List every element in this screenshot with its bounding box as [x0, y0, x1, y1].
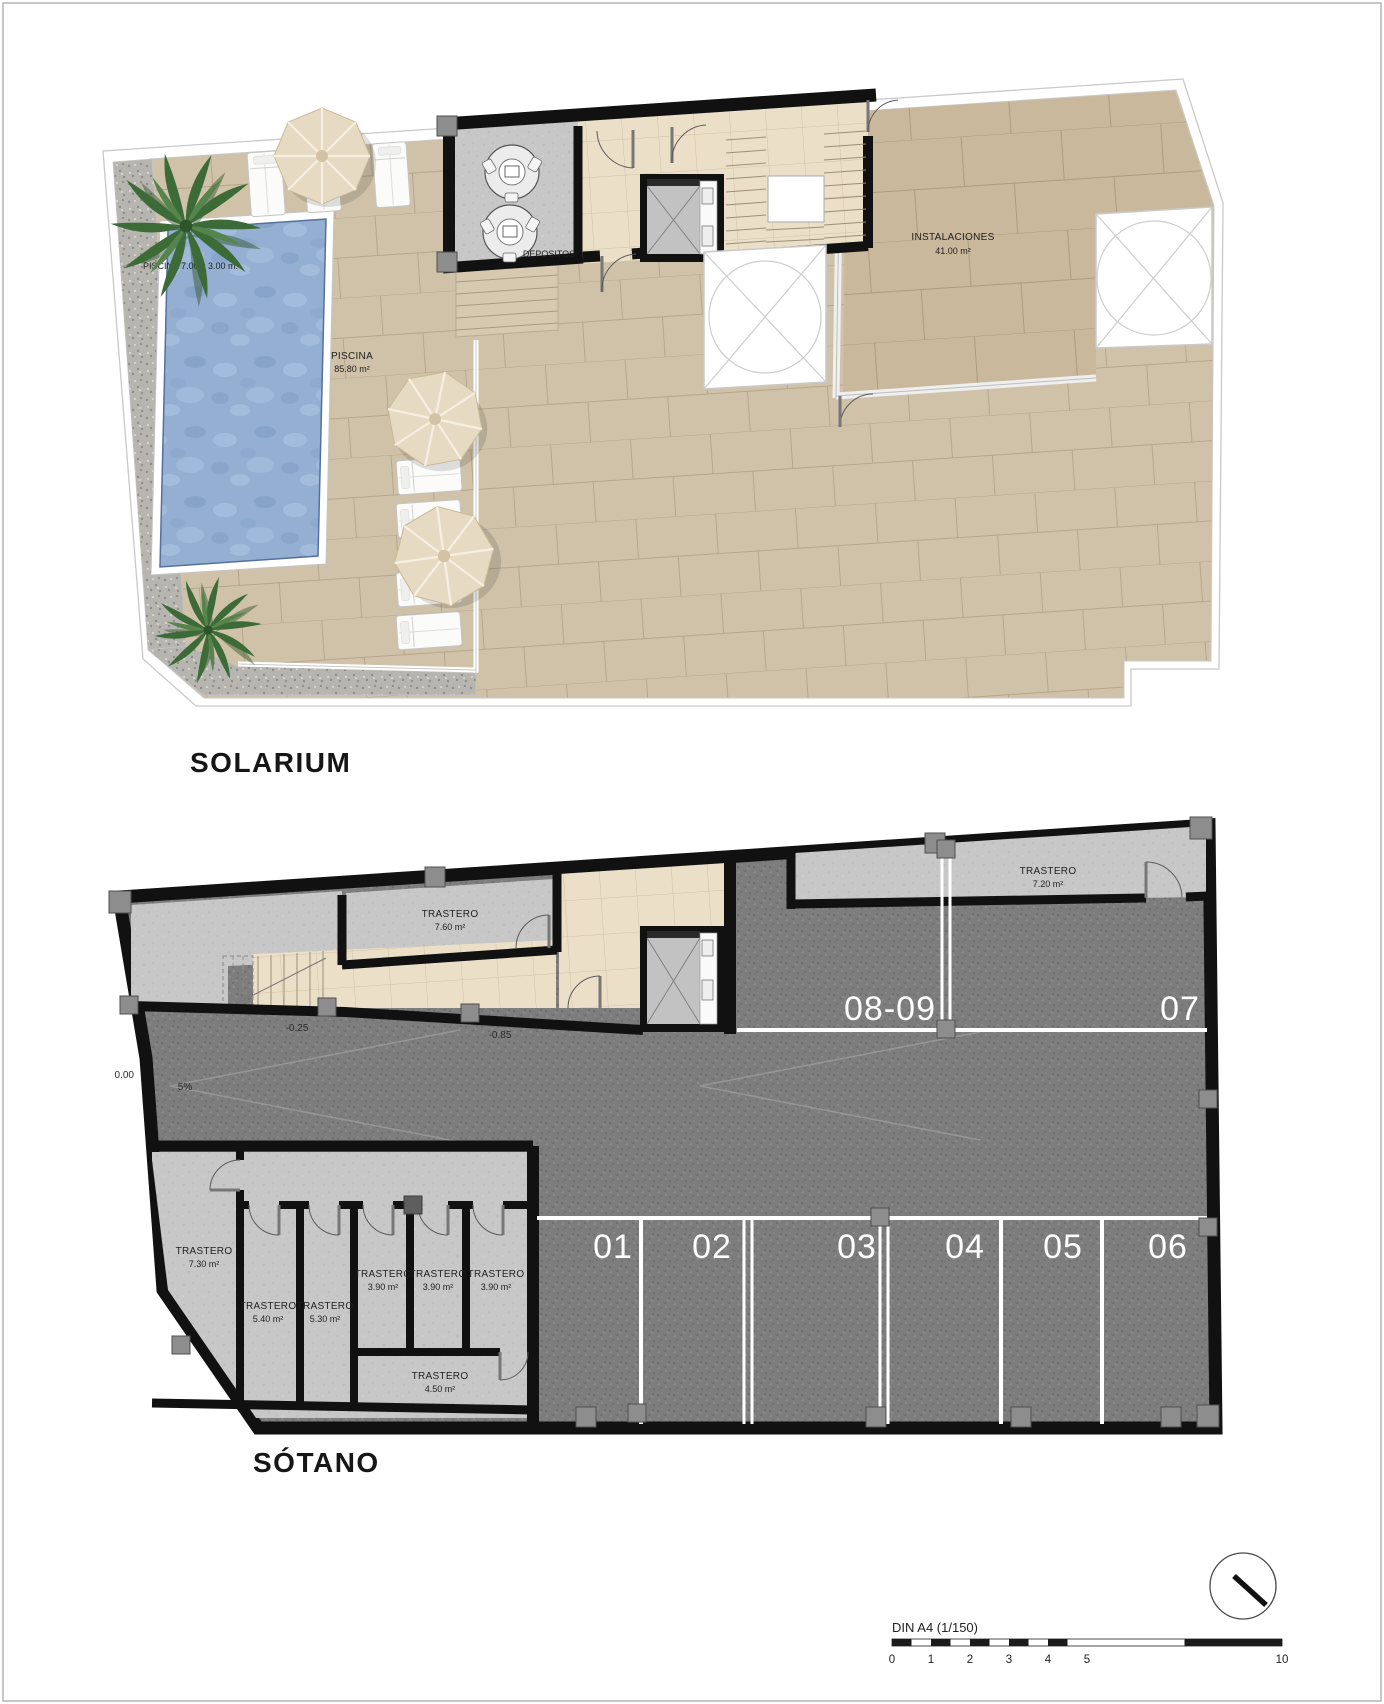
pool-name-label: PISCINA — [331, 351, 373, 362]
trastero-450-area: 4.50 m² — [425, 1384, 456, 1394]
north-arrow-icon — [1210, 1553, 1276, 1619]
solarium-title: SOLARIUM — [190, 747, 351, 778]
trastero-390a-area: 3.90 m² — [368, 1282, 399, 1292]
scale-title: DIN A4 (1/150) — [892, 1620, 978, 1635]
trastero-450-label: TRASTERO — [412, 1371, 469, 1382]
trastero-540-area: 5.40 m² — [253, 1314, 284, 1324]
parking-space-03: 03 — [837, 1228, 877, 1266]
parking-space-07: 07 — [1160, 990, 1200, 1028]
scale-tick-1: 1 — [928, 1654, 934, 1666]
elevator — [640, 174, 724, 262]
scale-ticks: 0 1 2 3 4 5 10 — [889, 1654, 1289, 1666]
skylight — [704, 245, 826, 389]
scale-tick-10: 10 — [1276, 1654, 1289, 1666]
trastero-760-label: TRASTERO — [422, 909, 479, 920]
trastero-720-label: TRASTERO — [1020, 866, 1077, 877]
parking-space-01: 01 — [593, 1228, 633, 1266]
sotano-title: SÓTANO — [253, 1447, 380, 1478]
trastero-530-area: 5.30 m² — [310, 1314, 341, 1324]
parking-space-06: 06 — [1148, 1228, 1188, 1266]
parking-space-05: 05 — [1043, 1228, 1083, 1266]
level-minus-025: -0.25 — [286, 1023, 309, 1034]
pool-area-label: 85.80 m² — [334, 364, 370, 374]
skylight — [1096, 207, 1212, 348]
trastero-530-label: TRASTERO — [297, 1301, 354, 1312]
trastero-390b-label: TRASTERO — [410, 1269, 467, 1280]
depositos-label: DEPOSITOS — [523, 249, 575, 259]
trastero-720-area: 7.20 m² — [1033, 879, 1064, 889]
ramp-slope: 5% — [178, 1082, 193, 1093]
parking-space-08-09: 08-09 — [844, 990, 936, 1028]
scale-tick-0: 0 — [889, 1654, 895, 1666]
plan-sheet: PISCINA 7.00 x 3.00 m. PISCINA 85.80 m² … — [0, 0, 1384, 1704]
scale-tick-4: 4 — [1045, 1654, 1052, 1666]
parking-space-04: 04 — [945, 1228, 985, 1266]
trastero-540-label: TRASTERO — [240, 1301, 297, 1312]
trastero-760-area: 7.60 m² — [435, 922, 466, 932]
trastero-block — [152, 1152, 528, 1418]
floorplan-drawing: PISCINA 7.00 x 3.00 m. PISCINA 85.80 m² … — [0, 0, 1384, 1704]
trastero-390a-label: TRASTERO — [355, 1269, 412, 1280]
legend: DIN A4 (1/150) 0 1 2 3 4 5 10 — [889, 1553, 1289, 1666]
column — [437, 252, 457, 272]
trastero-390b-area: 3.90 m² — [423, 1282, 454, 1292]
elevator — [640, 926, 724, 1032]
level-minus-085: -0.85 — [489, 1030, 512, 1041]
instalaciones-area-label: 41.00 m² — [935, 246, 971, 256]
level-zero: 0.00 — [115, 1070, 135, 1081]
scale-tick-5: 5 — [1084, 1654, 1090, 1666]
trastero-730-label: TRASTERO — [176, 1246, 233, 1257]
trastero-390c-label: TRASTERO — [468, 1269, 525, 1280]
scale-bar-blocks — [892, 1639, 1282, 1646]
scale-tick-2: 2 — [967, 1654, 973, 1666]
column — [437, 116, 457, 136]
parking-space-02: 02 — [692, 1228, 732, 1266]
sotano-plan: 01 02 03 04 05 06 07 08-09 — [109, 817, 1219, 1478]
trastero-390c-area: 3.90 m² — [481, 1282, 512, 1292]
scale-bar: DIN A4 (1/150) 0 1 2 3 4 5 10 — [889, 1620, 1289, 1666]
terrace-stair — [456, 263, 558, 337]
scale-tick-3: 3 — [1006, 1654, 1012, 1666]
trastero-730-area: 7.30 m² — [189, 1259, 220, 1269]
instalaciones-label: INSTALACIONES — [911, 232, 994, 243]
solarium-plan: PISCINA 7.00 x 3.00 m. PISCINA 85.80 m² … — [96, 79, 1223, 778]
